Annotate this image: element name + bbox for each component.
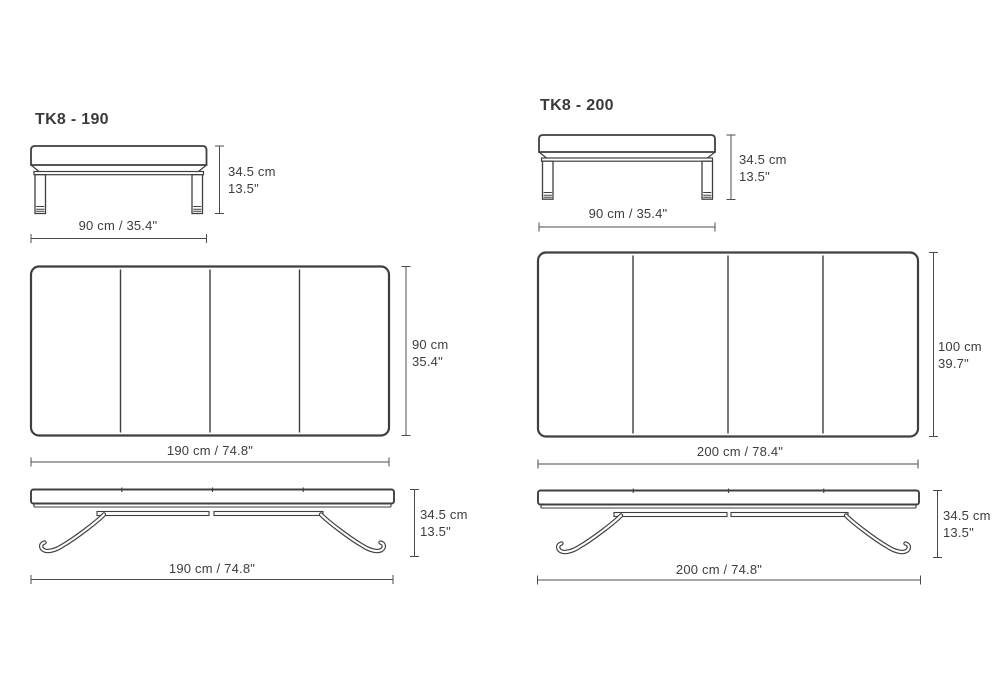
product-title-tk8-190: TK8 - 190 [35, 111, 109, 129]
dimension-cm: 100 cm [938, 338, 982, 355]
dimension-cm: 34.5 cm [943, 507, 991, 524]
dimension-inch: 39.7" [938, 355, 982, 372]
rail-right-segment [731, 513, 848, 517]
width-dimension-line [538, 460, 918, 469]
rail-left-segment [614, 513, 727, 517]
dimension-cm: 90 cm [412, 336, 448, 353]
right-sled-leg-inner [321, 515, 384, 552]
rail-right-segment [214, 512, 323, 516]
dimension-cm: 34.5 cm [228, 163, 276, 180]
tk8-200-end-width-label: 90 cm / 35.4" [547, 205, 709, 222]
tk8-190-end-height-label: 34.5 cm 13.5" [228, 163, 276, 197]
tk8-190-top-width-label: 190 cm / 74.8" [130, 442, 290, 459]
left-sled-leg-inner [558, 516, 621, 553]
tk8-200-top-height-label: 100 cm 39.7" [938, 338, 982, 372]
tk8-200-side-height-label: 34.5 cm 13.5" [943, 507, 991, 541]
right-leg [702, 161, 713, 199]
height-dimension-line [215, 146, 224, 214]
tk8-200-top-view [538, 253, 938, 469]
product-title-tk8-200: TK8 - 200 [540, 97, 614, 115]
left-leg [35, 175, 46, 214]
dimension-inch: 35.4" [412, 353, 448, 370]
tk8-200-end-height-label: 34.5 cm 13.5" [739, 151, 787, 185]
tk8-200-top-width-label: 200 cm / 78.4" [660, 443, 820, 460]
right-sled-leg [846, 516, 909, 553]
left-sled-leg [558, 516, 621, 553]
dimension-cm: 34.5 cm [420, 506, 468, 523]
leg-feet-hatch [36, 207, 201, 212]
cushion-taper-lines [31, 165, 207, 172]
height-dimension-line [402, 267, 411, 436]
right-sled-leg-inner [846, 516, 909, 553]
right-sled-leg [321, 515, 384, 552]
seat-frame [542, 158, 713, 161]
left-sled-leg-inner [41, 515, 104, 552]
tk8-190-end-width-label: 90 cm / 35.4" [37, 217, 199, 234]
seat-frame [34, 172, 204, 175]
left-leg [543, 161, 554, 199]
tk8-190-top-height-label: 90 cm 35.4" [412, 336, 448, 370]
drawing-linework [0, 0, 1000, 700]
right-leg [192, 175, 203, 214]
tk8-190-side-width-label: 190 cm / 74.8" [132, 560, 292, 577]
dimension-cm: 34.5 cm [739, 151, 787, 168]
tk8-190-top-view [31, 267, 411, 467]
rail-left-segment [97, 512, 209, 516]
height-dimension-line [410, 490, 419, 557]
height-dimension-line [727, 135, 736, 200]
height-dimension-line [933, 491, 942, 558]
dimension-inch: 13.5" [228, 180, 276, 197]
dimension-inch: 13.5" [739, 168, 787, 185]
cushion-outline [539, 135, 715, 152]
cushion-outline [31, 146, 207, 165]
leg-feet-hatch [544, 193, 712, 198]
dimension-inch: 13.5" [420, 523, 468, 540]
width-dimension-line [539, 223, 715, 232]
tk8-200-side-width-label: 200 cm / 74.8" [639, 561, 799, 578]
technical-drawing-sheet: TK8 - 190 TK8 - 200 34.5 cm 13.5" 90 cm … [0, 0, 1000, 700]
left-sled-leg [41, 515, 104, 552]
tk8-190-side-height-label: 34.5 cm 13.5" [420, 506, 468, 540]
width-dimension-line [31, 234, 207, 243]
dimension-inch: 13.5" [943, 524, 991, 541]
height-dimension-line [929, 253, 938, 437]
